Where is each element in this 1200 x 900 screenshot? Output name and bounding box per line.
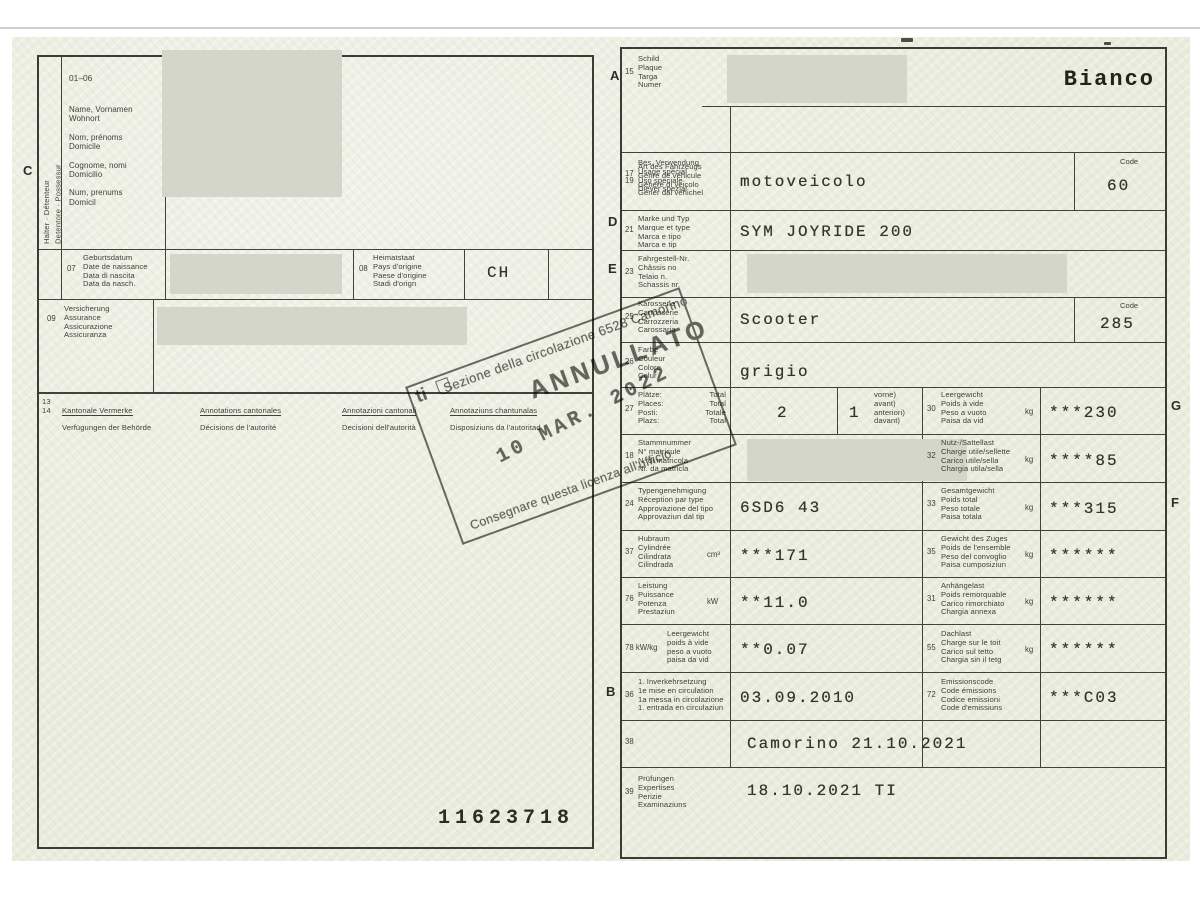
seats-front-value: 1 [849, 404, 861, 422]
cantonal-remarks-fr-line1: Annotations cantonales [200, 406, 281, 417]
displacement-unit: cm³ [707, 550, 720, 559]
body-code: 285 [1100, 315, 1135, 333]
cantonal-remarks-it-line2: Decisioni dell'autorità [342, 423, 416, 432]
plate-redaction [727, 55, 907, 103]
field-09-labels: Versicherung Assurance Assicurazione Ass… [64, 305, 113, 340]
code-label-25: Code [1120, 301, 1138, 310]
divider [622, 530, 1165, 531]
total-weight-labels: Gesamtgewicht Poids total Peso totale Pa… [941, 487, 995, 522]
cantonal-remarks-de-line2: Verfügungen der Behörde [62, 423, 151, 432]
cantonal-remarks-col-it: Annotazioni cantonali Decisioni dell'aut… [342, 398, 416, 433]
issuing-name: Bianco [1064, 67, 1155, 92]
power-value: **11.0 [740, 594, 810, 612]
cantonal-remarks-col-fr: Annotations cantonales Décisions de l'au… [200, 398, 281, 433]
type-approval-value: 6SD6 43 [740, 499, 821, 517]
divider [622, 624, 1165, 625]
train-weight-labels: Gewicht des Zuges Poids de l'ensemble Pe… [941, 535, 1011, 570]
field-19-number: 19 [625, 176, 634, 185]
cantonal-remarks-de-line1: Kantonale Vermerke [62, 406, 133, 417]
divider [622, 250, 1165, 251]
trailer-weight-value: ****** [1049, 594, 1119, 612]
scan-speck [1104, 42, 1111, 45]
total-weight-unit: kg [1025, 503, 1033, 512]
displacement-value: ***171 [740, 547, 810, 565]
roof-load-labels: Dachlast Charge sur le toit Carico sul t… [941, 630, 1002, 665]
divider [622, 152, 1165, 153]
margin-letter-e: E [608, 261, 617, 276]
divider [622, 767, 1165, 768]
field-08-labels: Heimatstaat Pays d'origine Paese d'origi… [373, 254, 427, 289]
field-07-labels: Geburtsdatum Date de naissance Data di n… [83, 254, 148, 289]
divider [153, 299, 154, 392]
field-36-number: 36 [625, 690, 634, 699]
scan-speck [901, 38, 913, 42]
cantonal-remarks-fr-line2: Décisions de l'autorité [200, 423, 276, 432]
payload-value: ****85 [1049, 452, 1119, 470]
seats-front-note: vorne) avant) anteriori) davant) [874, 391, 905, 426]
license-serial-number: 11623718 [438, 807, 574, 830]
field-23-number: 23 [625, 267, 634, 276]
margin-letter-f: F [1171, 495, 1179, 510]
power-labels: Leistung Puissance Potenza Prestaziun [638, 582, 675, 617]
displacement-labels: Hubraum Cylindrée Cilindrata Cilindrada [638, 535, 673, 570]
field-range-label: 01–06 [69, 73, 92, 83]
field-76-number: 76 [625, 594, 634, 603]
emission-code-labels: Emissionscode Code émissions Codice emis… [941, 678, 1002, 713]
field-35-number: 35 [927, 547, 936, 556]
field-37-number: 37 [625, 547, 634, 556]
holder-redaction [162, 50, 342, 197]
field-09-number: 09 [47, 314, 56, 323]
first-registration-labels: 1. Inverkehrsetzung 1e mise en circulati… [638, 678, 724, 713]
roof-load-unit: kg [1025, 645, 1033, 654]
field-55-number: 55 [927, 643, 936, 652]
vehicle-kind-labels: Art des Fahrzeugs Genre de véhicule Gene… [638, 163, 703, 198]
chassis-labels: Fahrgestell-Nr. Châssis no Telaio n. Sch… [638, 255, 689, 290]
margin-letter-d: D [608, 214, 617, 229]
make-type-value: SYM JOYRIDE 200 [740, 223, 914, 241]
vehicle-kind-value: motoveicolo [740, 173, 868, 191]
unladen-weight-value: ***230 [1049, 404, 1119, 422]
unladen-weight-unit: kg [1025, 407, 1033, 416]
divider [622, 482, 1165, 483]
field-78-number: 78 kW/kg [625, 643, 658, 652]
field-08-number: 08 [359, 264, 368, 273]
holder-field-labels: Name, Vornamen Wohnort Nom, prénoms Domi… [69, 105, 133, 207]
field-24-number: 24 [625, 499, 634, 508]
divider [622, 577, 1165, 578]
divider [353, 249, 354, 299]
train-weight-unit: kg [1025, 550, 1033, 559]
plate-labels: Schild Plaque Targa Numer [638, 55, 662, 90]
make-type-labels: Marke und Typ Marque et type Marca e tip… [638, 215, 690, 250]
field-30-number: 30 [927, 404, 936, 413]
divider [622, 210, 1165, 211]
type-approval-labels: Typengenehmigung Réception par type Appr… [638, 487, 713, 522]
margin-letter-g: G [1171, 398, 1181, 413]
divider [548, 249, 549, 299]
first-registration-value: 03.09.2010 [740, 689, 856, 707]
code-label-19: Code [1120, 157, 1138, 166]
trailer-weight-unit: kg [1025, 597, 1033, 606]
kw-per-kg-labels: Leergewicht poids à vide peso a vuoto pa… [667, 630, 712, 665]
origin-country-value: CH [487, 264, 510, 282]
inspection-value: 18.10.2021 TI [747, 782, 898, 800]
divider [622, 720, 1165, 721]
matricule-redaction [747, 439, 967, 481]
emission-code-value: ***C03 [1049, 689, 1119, 707]
field-33-number: 33 [927, 499, 936, 508]
divider [837, 387, 838, 434]
field-13-14-numbers: 13 14 [42, 398, 51, 416]
divider [702, 106, 1165, 107]
total-weight-value: ***315 [1049, 500, 1119, 518]
divider [1074, 152, 1075, 210]
power-unit: kW [707, 597, 718, 606]
field-07-number: 07 [67, 264, 76, 273]
divider [622, 672, 1165, 673]
scan-top-rule [0, 27, 1200, 29]
color-value: grigio [740, 363, 810, 381]
seats-total-value: 2 [777, 404, 789, 422]
divider [1074, 297, 1075, 342]
field-32-number: 32 [927, 451, 936, 460]
field-21-number: 21 [625, 225, 634, 234]
inspection-labels: Prüfungen Expertises Perizie Examinaziun… [638, 775, 686, 810]
cantonal-remarks-it-line1: Annotazioni cantonali [342, 406, 416, 417]
payload-labels: Nutz-/Sattellast Charge utile/sellette C… [941, 439, 1010, 474]
scanned-vehicle-license: Halter · Détenteur Detentore · Possessur… [0, 0, 1200, 900]
divider [464, 249, 465, 299]
issue-place-date-value: Camorino 21.10.2021 [747, 735, 967, 753]
divider [39, 299, 592, 300]
field-72-number: 72 [927, 690, 936, 699]
cantonal-remarks-col-de: Kantonale Vermerke Verfügungen der Behör… [62, 398, 151, 433]
divider [1040, 387, 1041, 767]
kw-per-kg-value: **0.07 [740, 641, 810, 659]
insurance-redaction [157, 307, 467, 345]
margin-letter-b: B [606, 684, 615, 699]
divider [39, 249, 592, 250]
margin-letter-c: C [23, 163, 32, 178]
roof-load-value: ****** [1049, 641, 1119, 659]
trailer-weight-labels: Anhängelast Poids remorquable Carico rim… [941, 582, 1006, 617]
birthdate-redaction [170, 254, 342, 294]
payload-unit: kg [1025, 455, 1033, 464]
divider [622, 297, 1165, 298]
field-38-number: 38 [625, 737, 634, 746]
unladen-weight-labels: Leergewicht Poids à vide Peso a vuoto Pa… [941, 391, 987, 426]
margin-letter-a: A [610, 68, 619, 83]
train-weight-value: ****** [1049, 547, 1119, 565]
body-value: Scooter [740, 311, 821, 329]
field-31-number: 31 [927, 594, 936, 603]
holder-vertical-label: Halter · Détenteur Detentore · Possessur [41, 69, 64, 244]
chassis-redaction [747, 254, 1067, 293]
field-39-number: 39 [625, 787, 634, 796]
vehicle-kind-code: 60 [1107, 177, 1130, 195]
field-15-number: 15 [625, 67, 634, 76]
